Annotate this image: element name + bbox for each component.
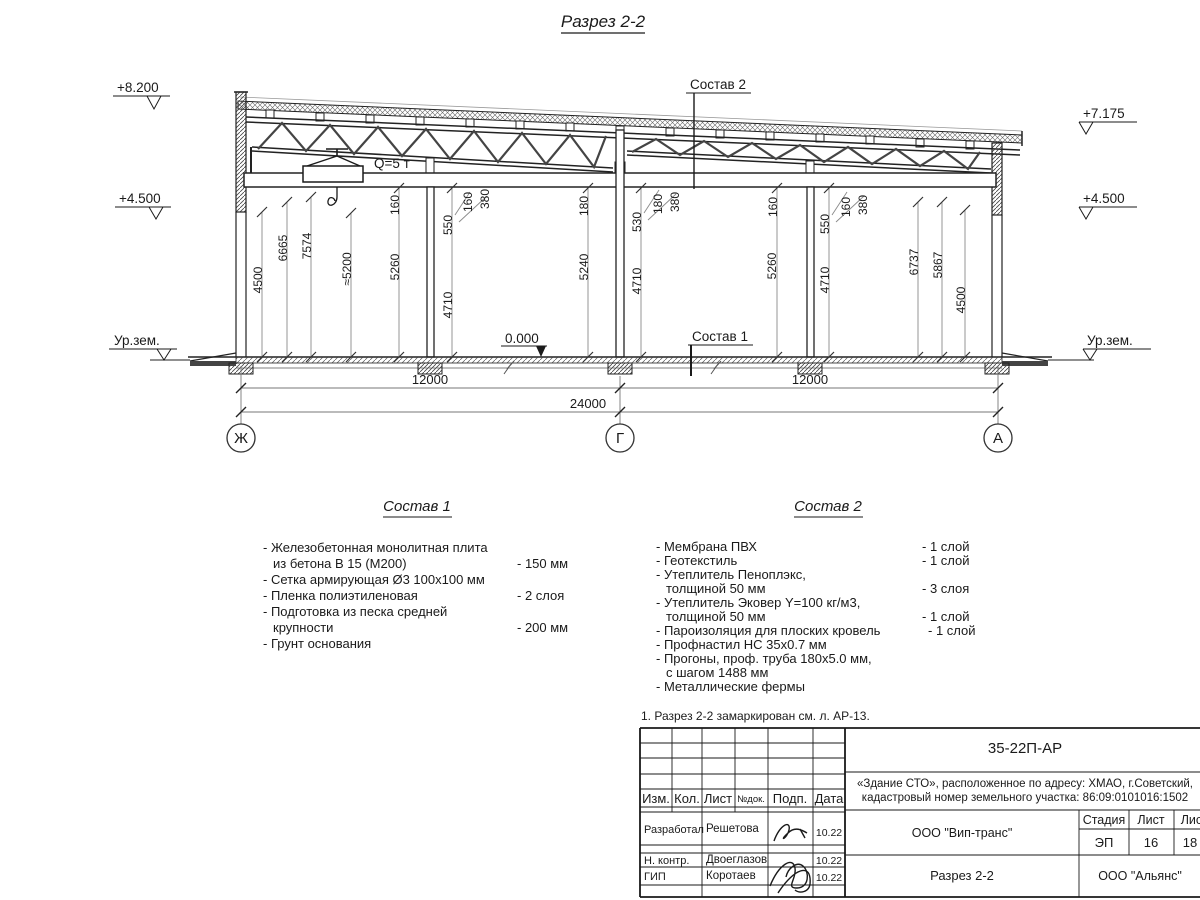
dim-label: 380 bbox=[668, 192, 682, 212]
dim-label: 6737 bbox=[907, 248, 921, 275]
list-item: толщиной 50 мм bbox=[666, 609, 766, 624]
dim-label: 530 bbox=[630, 212, 644, 232]
dim-label: 4500 bbox=[954, 286, 968, 313]
list-item-value: - 1 слой bbox=[922, 553, 970, 568]
elevation-8200: +8.200 bbox=[117, 80, 159, 95]
elevation-4500-left: +4.500 bbox=[119, 191, 161, 206]
dim-label: 180 bbox=[651, 194, 665, 214]
col-header-ndok: №док. bbox=[737, 794, 765, 805]
dim-label: 160 bbox=[766, 197, 780, 217]
dim-label: 550 bbox=[818, 214, 832, 234]
row-date: 10.22 bbox=[816, 827, 842, 839]
list-item: - Металлические фермы bbox=[656, 679, 805, 694]
list-item: толщиной 50 мм bbox=[666, 581, 766, 596]
project-address-line2: кадастровый номер земельного участка: 86… bbox=[862, 792, 1188, 804]
signature bbox=[774, 825, 807, 841]
row-date: 10.22 bbox=[816, 872, 842, 884]
dim-label: 180 bbox=[577, 196, 591, 216]
document-code: 35-22П-АР bbox=[988, 740, 1062, 757]
stage-label: Стадия bbox=[1083, 813, 1126, 827]
sostav1-list: Состав 1 - Железобетонная монолитная пли… bbox=[263, 498, 568, 651]
dim-label: 550 bbox=[441, 215, 455, 235]
project-address-line1: «Здание СТО», расположенное по адресу: Х… bbox=[857, 778, 1193, 790]
dim-label: ≈5200 bbox=[340, 252, 354, 286]
elevation-zero: 0.000 bbox=[505, 331, 539, 346]
row-role: ГИП bbox=[644, 871, 666, 883]
dim-label: 5260 bbox=[765, 252, 779, 279]
title-block: Изм. Кол. Лист №док. Подп. Дата Разработ… bbox=[640, 728, 1200, 897]
list-item: - Прогоны, проф. труба 180х5.0 мм, bbox=[656, 651, 872, 666]
row-name: Двоеглазов bbox=[706, 854, 767, 866]
sheets-label: Листов bbox=[1181, 813, 1200, 827]
crane-capacity-label: Q=5 т bbox=[374, 156, 410, 171]
list-item: - Пароизоляция для плоских кровель bbox=[656, 623, 881, 638]
elevation-4500-right: +4.500 bbox=[1083, 191, 1125, 206]
sheet-value: 16 bbox=[1144, 835, 1158, 850]
list-item-value: - 3 слоя bbox=[922, 581, 969, 596]
axis-markers: Ж Г А bbox=[227, 424, 1012, 452]
list-item: - Геотекстиль bbox=[656, 553, 737, 568]
horizontal-dimensions: 12000 12000 24000 bbox=[236, 366, 1003, 424]
col-header-data: Дата bbox=[815, 791, 845, 806]
list-item: - Профнастил НС 35х0.7 мм bbox=[656, 637, 827, 652]
dim-span-right: 12000 bbox=[792, 372, 828, 387]
list-item-value: - 1 слой bbox=[922, 539, 970, 554]
sheet-note: 1. Разрез 2-2 замаркирован см. л. АР-13. bbox=[641, 709, 870, 723]
dim-label: 380 bbox=[856, 195, 870, 215]
dim-label: 7574 bbox=[300, 232, 314, 259]
elevation-7175: +7.175 bbox=[1083, 106, 1125, 121]
row-role: Разработал bbox=[644, 824, 704, 836]
org-center: ООО "Вип-транс" bbox=[912, 826, 1013, 840]
callout-sostav1: Состав 1 bbox=[692, 329, 748, 344]
vertical-dimension-labels: 4500 6665 7574 ≈5200 160 5260 550 160 38… bbox=[251, 189, 968, 319]
dim-label: 160 bbox=[839, 197, 853, 217]
dim-span-left: 12000 bbox=[412, 372, 448, 387]
dim-label: 4710 bbox=[818, 266, 832, 293]
sheets-value: 18 bbox=[1183, 835, 1197, 850]
ground-level-label-right: Ур.зем. bbox=[1087, 333, 1133, 348]
row-name: Коротаев bbox=[706, 870, 756, 882]
dim-label: 5260 bbox=[388, 253, 402, 280]
dim-label: 5240 bbox=[577, 253, 591, 280]
axis-label-a: А bbox=[993, 430, 1003, 447]
dim-label: 4710 bbox=[441, 291, 455, 318]
dim-label: 380 bbox=[478, 189, 492, 209]
list-item: - Утеплитель Пеноплэкс, bbox=[656, 567, 806, 582]
sheet-label: Лист bbox=[1137, 813, 1164, 827]
callout-sostav2: Состав 2 bbox=[690, 77, 746, 92]
stage-value: ЭП bbox=[1095, 835, 1114, 850]
list-item-value: - 1 слой bbox=[928, 623, 976, 638]
foundation-blocks bbox=[229, 363, 1009, 374]
list-item-value: - 1 слой bbox=[922, 609, 970, 624]
col-header-izm: Изм. bbox=[642, 791, 670, 806]
page-title: Разрез 2-2 bbox=[561, 12, 646, 31]
list-item: - Подготовка из песка средней bbox=[263, 604, 447, 619]
list-item-value: - 150 мм bbox=[517, 556, 568, 571]
list-item: с шагом 1488 мм bbox=[666, 665, 768, 680]
dim-label: 4500 bbox=[251, 266, 265, 293]
col-header-kol: Кол. bbox=[674, 791, 700, 806]
ground-level-label-left: Ур.зем. bbox=[114, 333, 160, 348]
drawing-name: Разрез 2-2 bbox=[930, 868, 994, 883]
axis-label-g: Г bbox=[616, 430, 624, 447]
list-item: - Железобетонная монолитная плита bbox=[263, 540, 488, 555]
list-item: - Мембрана ПВХ bbox=[656, 539, 757, 554]
drawing-sheet: Разрез 2-2 bbox=[0, 0, 1200, 900]
axis-label-zh: Ж bbox=[234, 430, 248, 447]
dim-label: 5867 bbox=[931, 251, 945, 278]
left-wall bbox=[234, 92, 248, 357]
dim-label: 160 bbox=[461, 192, 475, 212]
list-item: - Пленка полиэтиленовая bbox=[263, 588, 418, 603]
dim-label: 4710 bbox=[630, 267, 644, 294]
list-item: - Грунт основания bbox=[263, 636, 371, 651]
col-header-podp: Подп. bbox=[773, 791, 808, 806]
sostav2-title: Состав 2 bbox=[794, 498, 862, 515]
list-item: - Сетка армирующая Ø3 100х100 мм bbox=[263, 572, 485, 587]
sostav2-list: Состав 2 - Мембрана ПВХ - 1 слой - Геоте… bbox=[656, 498, 976, 694]
list-item-value: - 200 мм bbox=[517, 620, 568, 635]
dim-label: 160 bbox=[388, 195, 402, 215]
row-date: 10.22 bbox=[816, 855, 842, 867]
org-right: ООО "Альянс" bbox=[1098, 869, 1182, 883]
row-role: Н. контр. bbox=[644, 855, 689, 867]
list-item-value: - 2 слоя bbox=[517, 588, 564, 603]
list-item: крупности bbox=[273, 620, 333, 635]
col-header-list: Лист bbox=[704, 791, 732, 806]
list-item: из бетона В 15 (М200) bbox=[273, 556, 407, 571]
list-item: - Утеплитель Эковер Y=100 кг/м3, bbox=[656, 595, 860, 610]
row-name: Решетова bbox=[706, 823, 759, 835]
dim-label: 6665 bbox=[276, 234, 290, 261]
section-drawing-svg: Разрез 2-2 bbox=[0, 0, 1200, 900]
sostav1-title: Состав 1 bbox=[383, 498, 451, 515]
dim-total: 24000 bbox=[570, 396, 606, 411]
